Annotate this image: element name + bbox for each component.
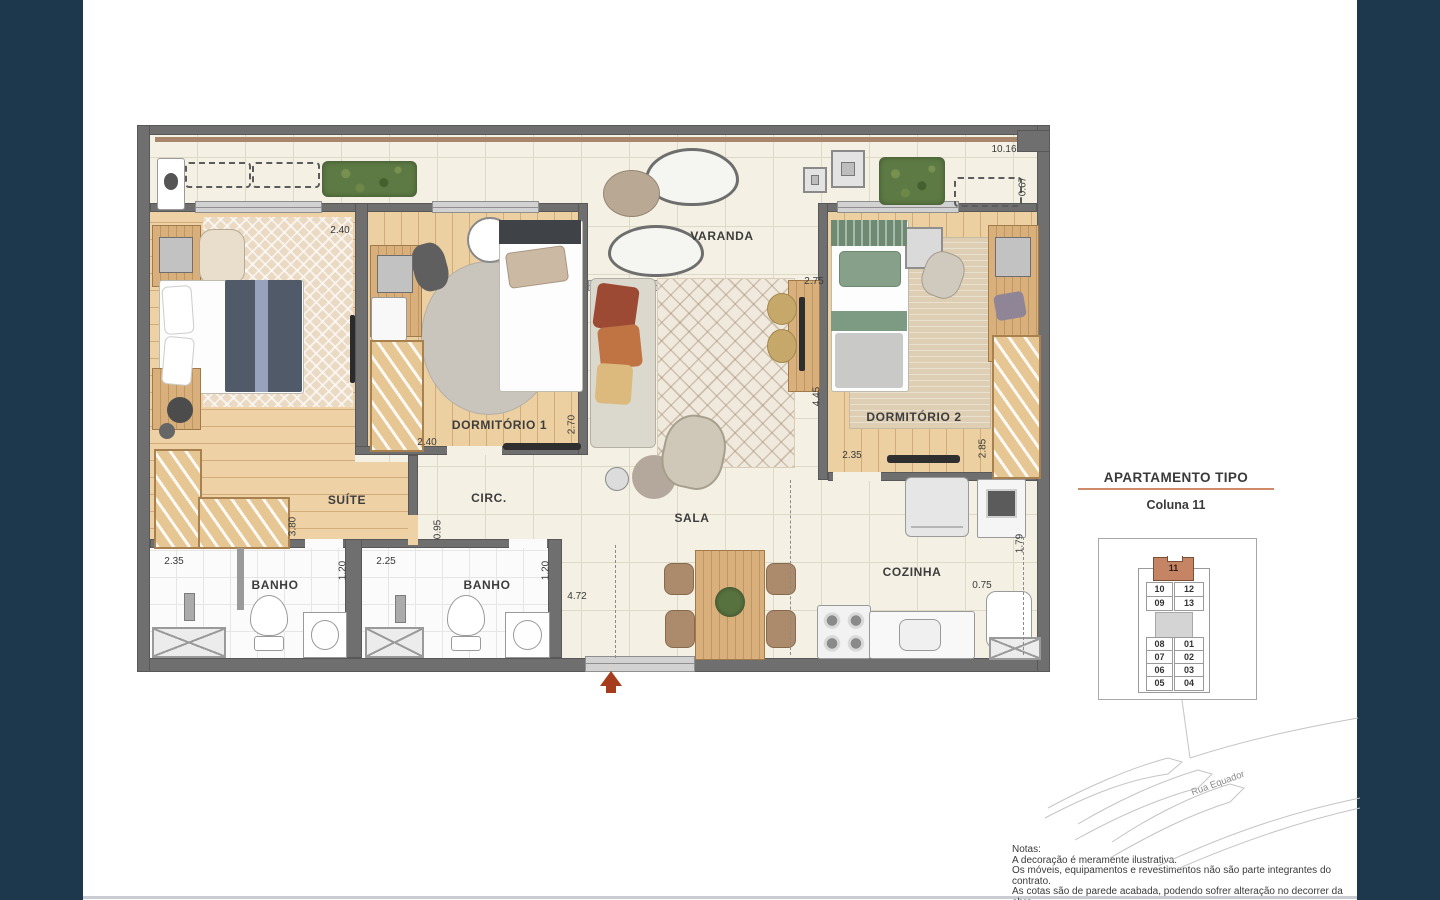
- door-gap-suite: [408, 515, 418, 545]
- dining-chair-2: [665, 610, 695, 648]
- suite-bed-runner: [255, 280, 268, 392]
- pouf-1: [767, 293, 797, 325]
- table-plant: [715, 587, 745, 617]
- dim-suite-width: 2.40: [323, 225, 357, 236]
- dorm2-throw: [835, 333, 903, 388]
- banho2-shower-box: [365, 627, 424, 658]
- dim-dorm1-width: 2.40: [410, 437, 444, 448]
- dim-banho2-width: 2.25: [369, 556, 403, 567]
- balcony-railing: [155, 137, 1017, 142]
- banho2-label: BANHO: [452, 578, 522, 592]
- varanda-label: VARANDA: [677, 229, 767, 243]
- water-heater: [157, 158, 185, 210]
- circ-label: CIRC.: [459, 491, 519, 505]
- keyplan-unit: 10: [1146, 582, 1173, 597]
- suite-window: [195, 201, 322, 213]
- ceiling-spot-small: [803, 167, 827, 193]
- dim-suite-height: 3.80: [288, 512, 299, 542]
- dorm2-label: DORMITÓRIO 2: [849, 410, 979, 424]
- kitchen-sink: [899, 619, 941, 651]
- banho1-shower-box: [152, 627, 226, 658]
- dim-banho1-width: 2.35: [157, 556, 191, 567]
- dining-chair-4: [766, 610, 796, 648]
- suite-wardrobe-horizontal: [198, 497, 290, 549]
- dim-sala-width: 2.75: [797, 276, 831, 287]
- door-gap-dorm2: [833, 472, 881, 481]
- panel-title: APARTAMENTO TIPO: [1078, 470, 1274, 485]
- keyplan-core: [1155, 612, 1193, 638]
- dim-cozinha-height: 1.79: [1015, 529, 1026, 559]
- laundry-box: [989, 637, 1041, 660]
- dorm2-blanket-band: [831, 311, 907, 331]
- banho2-sink: [505, 612, 550, 658]
- suite-pillow-2: [161, 336, 195, 386]
- suite-wardrobe-vertical: [154, 449, 202, 549]
- floor-lamp: [605, 467, 629, 491]
- suite-floor-lamp: [167, 397, 193, 423]
- banho1-label: BANHO: [240, 578, 310, 592]
- wall-suite-dorm1: [355, 203, 368, 455]
- dorm1-window: [432, 201, 539, 213]
- sala-tv: [799, 297, 805, 371]
- dim-cozinha-width: 0.75: [965, 580, 999, 591]
- door-gap-banho2: [509, 539, 547, 548]
- dim-circ: 0.95: [433, 515, 444, 545]
- ac-condenser-box-1: [185, 162, 251, 188]
- kitchen-boundary-dashed: [790, 480, 791, 655]
- suite-laptop: [159, 237, 193, 273]
- dim-top-height: 0.67: [1018, 173, 1029, 201]
- banho1-shower-head: [184, 593, 195, 621]
- suite-pillow-1: [161, 285, 194, 335]
- dorm1-bed: [499, 220, 583, 392]
- keyplan: 11 10 12 09 13 08 01 07 02 06 03 05 04: [1098, 538, 1257, 700]
- suite-bench: [199, 229, 245, 285]
- street-sketch: [1040, 700, 1360, 870]
- dorm1-label: DORMITÓRIO 1: [437, 418, 562, 432]
- dorm2-curtain-rail: [887, 455, 960, 463]
- planter-right: [879, 157, 945, 205]
- planter-left: [322, 161, 417, 197]
- dorm2-pillow: [839, 251, 901, 287]
- banho2-toilet: [447, 595, 485, 653]
- suite-label: SUÍTE: [312, 493, 382, 507]
- dorm2-laptop: [995, 237, 1031, 277]
- dorm1-shelf: [371, 297, 407, 341]
- stove: [817, 605, 871, 659]
- ac-condenser-box-3: [954, 177, 1022, 207]
- entry-arrow-stem: [606, 686, 616, 693]
- right-navy-bar: [1357, 0, 1440, 900]
- page: 10.16 0.67 VARANDA SUÍTE 2.40 3.80: [0, 0, 1440, 900]
- keyplan-unit: 13: [1174, 596, 1204, 611]
- door-gap-dorm1: [447, 446, 502, 455]
- floor-plan: 10.16 0.67 VARANDA SUÍTE 2.40 3.80: [137, 125, 1050, 672]
- ac-condenser-box-2: [252, 162, 320, 188]
- keyplan-unit: 05: [1146, 676, 1173, 691]
- dining-chair-3: [766, 563, 796, 595]
- door-gap-banho1: [305, 539, 343, 548]
- panel-title-rule: [1078, 488, 1274, 490]
- panel-subtitle: Coluna 11: [1078, 498, 1274, 512]
- dorm1-wardrobe: [370, 340, 424, 452]
- dim-sala-height: 4.45: [812, 382, 823, 412]
- dim-top-width: 10.16: [982, 144, 1026, 155]
- dim-banho2-height: 1.20: [541, 556, 552, 586]
- keyplan-unit: 09: [1146, 596, 1173, 611]
- sala-label: SALA: [657, 511, 727, 525]
- keyplan-unit: 12: [1174, 582, 1204, 597]
- banho1-sink: [303, 612, 347, 658]
- suite-plant: [159, 423, 175, 439]
- dim-banho1-height: 1.20: [338, 556, 349, 586]
- dorm2-headboard: [831, 220, 907, 246]
- dorm1-laptop: [377, 255, 413, 293]
- entry-arrow-icon: [600, 671, 622, 686]
- entry-door-sill: [585, 656, 695, 672]
- dining-chair-1: [664, 563, 694, 595]
- banho1-toilet: [250, 595, 288, 653]
- dorm2-pouf: [993, 291, 1027, 322]
- suite-tv: [350, 315, 355, 383]
- left-navy-bar: [0, 0, 83, 900]
- wall-top: [137, 125, 1050, 135]
- wall-left: [137, 125, 150, 672]
- dim-dorm2-height: 2.85: [978, 434, 989, 464]
- dim-dorm1-height: 2.70: [567, 410, 578, 440]
- dim-dorm2-width: 2.35: [835, 450, 869, 461]
- banho2-shower-head: [395, 595, 406, 623]
- sofa-pillow-cream: [595, 363, 634, 405]
- keyplan-unit: 04: [1174, 676, 1204, 691]
- dorm1-headboard: [499, 220, 581, 244]
- entry-axis-dashed-line: [615, 545, 616, 658]
- varanda-table: [603, 170, 660, 217]
- keyplan-unit-highlighted: 11: [1153, 557, 1194, 581]
- notes-line: As cotas são de parede acabada, podendo …: [1012, 887, 1357, 900]
- pouf-2: [767, 329, 797, 363]
- dorm2-wardrobe: [992, 335, 1041, 479]
- cozinha-label: COZINHA: [872, 565, 952, 579]
- fridge: [905, 477, 969, 537]
- dorm1-curtain-rail: [503, 443, 581, 450]
- dim-entry-width: 4.72: [557, 591, 597, 602]
- ceiling-spot-large: [831, 150, 865, 188]
